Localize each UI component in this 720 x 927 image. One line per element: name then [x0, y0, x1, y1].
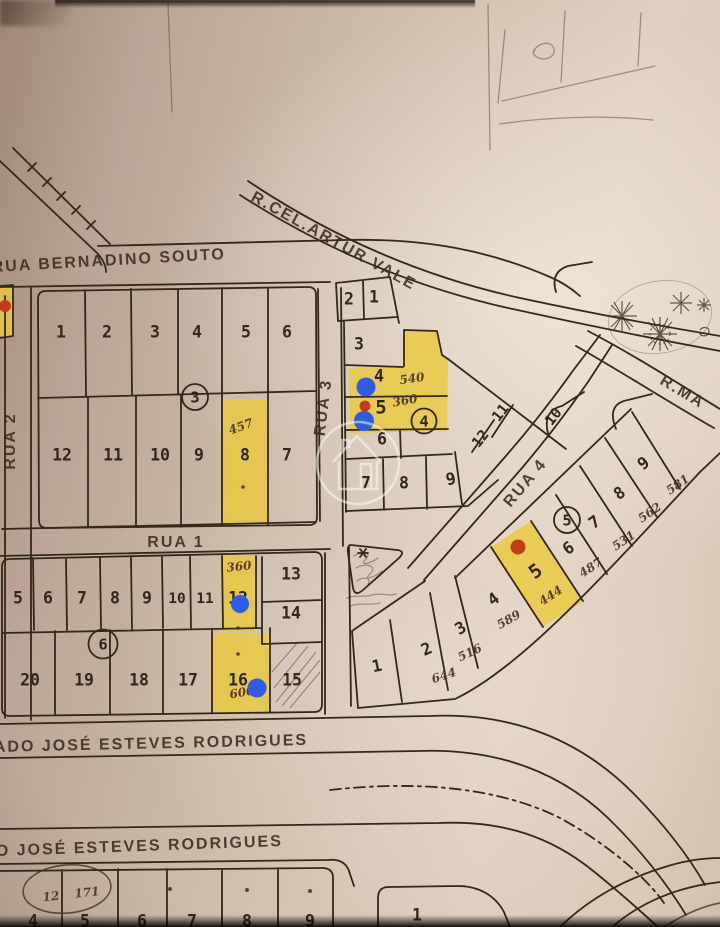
avenue-median-dashline: [330, 786, 664, 903]
street-label-esteves-upper: ADO JOSÉ ESTEVES RODRIGUES: [0, 730, 308, 756]
lot-number: 1: [369, 288, 379, 307]
watermark-house-icon: [317, 422, 399, 504]
hand-ref-171: 171: [74, 884, 100, 901]
photo-bottom-shadow: [0, 915, 720, 927]
lot-number: 5: [375, 397, 386, 419]
lot-number: 14: [281, 604, 301, 623]
lot-number: 19: [74, 671, 94, 690]
hand-area-589: 589: [494, 607, 523, 632]
triangle-park: [348, 545, 402, 593]
road-block6-east: [325, 547, 351, 714]
lot-number: 8: [610, 483, 629, 504]
lot-number: 1: [370, 656, 384, 677]
lot-number: 2: [418, 638, 435, 659]
lot-number: 9: [634, 453, 653, 474]
lot-number: 2: [344, 290, 354, 309]
street-label-bernadino-souto: RUA BERNADINO SOUTO: [0, 246, 226, 276]
block-number-4: 4: [419, 413, 428, 431]
lot-number: 1: [56, 323, 66, 342]
lot-number: 9: [142, 589, 152, 608]
lot-number: 8: [399, 474, 409, 493]
street-label-rua-2: RUA 2: [2, 412, 19, 469]
lot-number: 13: [281, 565, 301, 584]
lot-number: 7: [585, 512, 604, 533]
hand-area-581: 581: [663, 472, 692, 498]
block-3-grid: [38, 287, 317, 528]
map-pin-blue[interactable]: [248, 679, 267, 698]
map-pin-red[interactable]: [360, 401, 371, 412]
hand-area-516: 516: [455, 641, 484, 665]
lot-number: 17: [178, 671, 198, 690]
street-label-rua-1: RUA 1: [147, 534, 204, 551]
street-label-esteves-lower: O JOSÉ ESTEVES RODRIGUES: [0, 831, 283, 860]
lot-number: 12: [469, 427, 492, 451]
lot-number: 5: [13, 589, 23, 608]
lot-number: 18: [129, 671, 149, 690]
hand-area-644: 644: [430, 665, 458, 686]
hand-ref-12: 12: [42, 889, 60, 905]
map-pin-blue[interactable]: [231, 595, 249, 613]
photo-corner-shadow: [0, 0, 70, 26]
tree-symbols: [607, 292, 711, 351]
road-artur-vale: [240, 181, 720, 351]
lot-number: 20: [20, 671, 40, 690]
block-number-3: 3: [190, 389, 199, 407]
road-network: [0, 148, 720, 720]
hand-area-531: 531: [609, 528, 638, 554]
lot-number: 10: [168, 591, 185, 607]
lot-number: 9: [444, 469, 458, 490]
block-number-6: 6: [98, 636, 107, 654]
lot-number: 4: [484, 589, 503, 610]
block-6-grid: [2, 552, 322, 716]
lot-number: 6: [282, 323, 292, 342]
map-pin-blue[interactable]: [357, 378, 376, 397]
lot-number: 4: [374, 367, 384, 386]
map-pin-red[interactable]: [511, 540, 526, 555]
lot-number: 2: [102, 323, 112, 342]
lot-number: 6: [43, 589, 53, 608]
road-rua-2: [5, 288, 31, 720]
photo-top-shadow: [55, 0, 475, 8]
lot-number: 11: [103, 446, 123, 465]
lot-number: 12: [52, 446, 72, 465]
lot-number: 8: [110, 589, 120, 608]
lot-number: 15: [282, 671, 302, 690]
street-label-r-ma: R.MA: [657, 372, 708, 412]
lot-number: 11: [196, 591, 214, 607]
lot-number: 7: [282, 446, 292, 465]
map-photo: 3 4 5 6 RUA BERNADINO SOUTO R.CEL.ARTUR …: [0, 0, 720, 927]
block-corner-stubs: [547, 262, 652, 437]
street-label-rua-3: RUA 3: [312, 378, 336, 437]
lot-number: 9: [194, 446, 204, 465]
hand-area-562: 562: [635, 500, 664, 526]
lot-number: 8: [240, 446, 250, 465]
lot-number: 4: [192, 323, 202, 342]
pencil-scribble: [533, 43, 554, 59]
lot-number: 3: [354, 335, 364, 354]
lot-number: 6: [559, 538, 578, 559]
plat-map-drawing: 3 4 5 6 RUA BERNADINO SOUTO R.CEL.ARTUR …: [0, 0, 720, 927]
block-number-5: 5: [562, 512, 571, 530]
lot-number: 10: [150, 446, 170, 465]
hand-area-360-block6: 360: [226, 558, 253, 575]
lot-number: 7: [77, 589, 87, 608]
lot-number: 5: [241, 323, 251, 342]
lot-number: 3: [150, 323, 160, 342]
